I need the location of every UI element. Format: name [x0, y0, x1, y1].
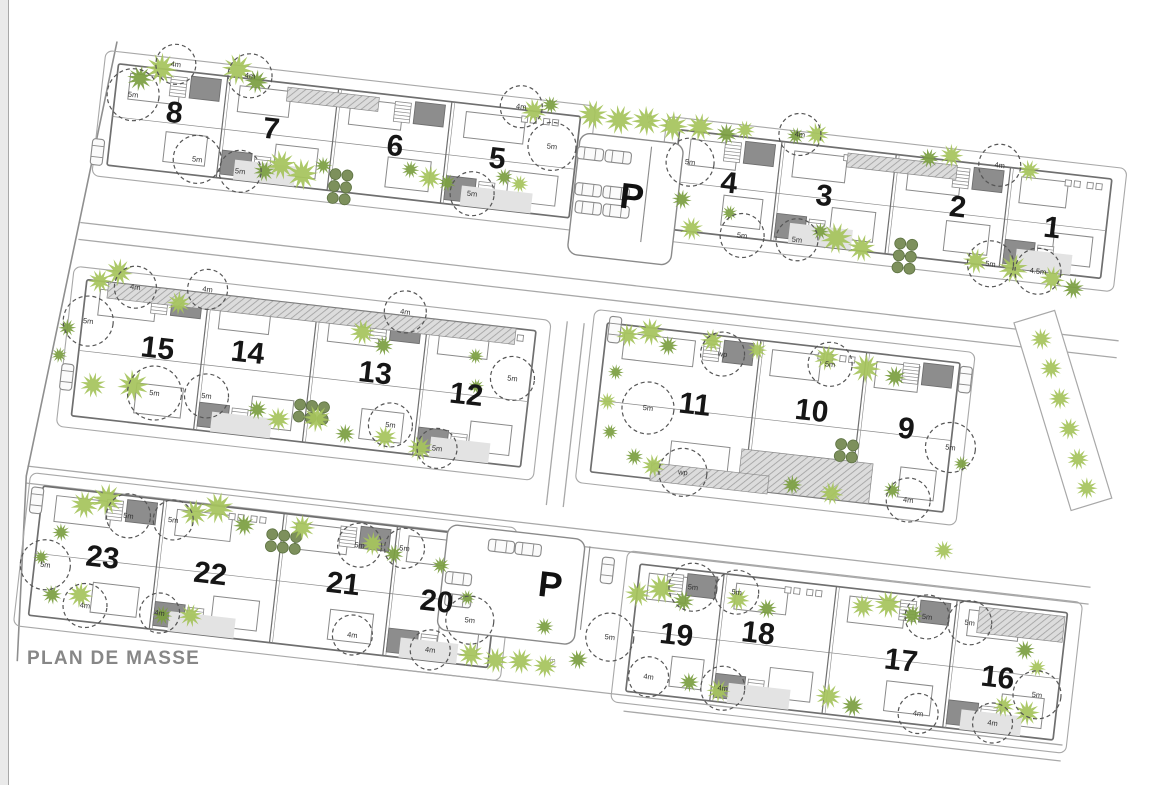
page: PPEVEV5m4m4m5m5m4m5m5m5m4m5m5m4m5m4.5m4m… [0, 0, 1170, 785]
measure-label: 4m [794, 129, 805, 139]
unit-number-12: 12 [448, 377, 485, 414]
parking-label: P [618, 175, 647, 218]
parking-label: P [536, 563, 565, 606]
unit-number-11: 11 [677, 387, 712, 423]
measure-label: 4m [154, 608, 165, 618]
tree [576, 98, 609, 131]
car-body [577, 146, 604, 161]
car-icon [488, 539, 515, 554]
car-body [958, 366, 973, 393]
measure-label: 5m [684, 157, 695, 167]
tree [532, 653, 559, 680]
unit-number-21: 21 [325, 566, 362, 603]
car-icon [958, 366, 973, 393]
car-body [575, 182, 602, 197]
car-icon [605, 150, 632, 165]
car-body [59, 363, 74, 390]
unit-number-20: 20 [418, 584, 455, 621]
plan-title: PLAN DE MASSE [27, 648, 200, 670]
measure-label: 5m [921, 612, 932, 622]
measure-label: 5m [83, 316, 94, 326]
unit-number-14: 14 [229, 335, 266, 372]
car-body [445, 571, 472, 586]
car-body [488, 539, 515, 554]
measure-label: 5m [546, 141, 557, 151]
car-body [600, 557, 615, 584]
tree [630, 104, 663, 137]
measure-label: 4m [400, 307, 411, 317]
shrub [891, 261, 903, 273]
measure-label: 5m [399, 543, 410, 553]
measure-label: 5m [824, 359, 835, 369]
measure-label: 4m [202, 284, 213, 294]
measure-label: 4m [717, 683, 728, 693]
unit-number-23: 23 [84, 539, 121, 576]
car-icon [577, 146, 604, 161]
unit-number-19: 19 [658, 617, 695, 654]
measure-label: 5m [168, 515, 179, 525]
measure-label: 5m [791, 235, 802, 245]
road-line [546, 321, 567, 505]
measure-label: 4m [79, 600, 90, 610]
tree [603, 104, 635, 136]
car-icon [59, 363, 74, 390]
measure-label: 4m [425, 645, 436, 655]
car-body [515, 542, 542, 557]
measure-label: 5m [431, 443, 442, 453]
measure-label: 5m [1031, 690, 1042, 700]
measure-label: 5m [201, 391, 212, 401]
measure-label: 4m [903, 495, 914, 505]
measure-label: 5m [149, 388, 160, 398]
measure-label: 5m [604, 632, 615, 642]
road-line [563, 323, 584, 507]
measure-label: 4.5m [1029, 266, 1047, 277]
unit-11[interactable] [590, 323, 760, 490]
tree [57, 318, 77, 338]
car-body [607, 316, 622, 343]
measure-label: wp [677, 467, 689, 477]
measure-label: 5m [945, 442, 956, 452]
car-icon [515, 542, 542, 557]
car-icon [29, 487, 44, 514]
measure-label: 5m [192, 154, 203, 164]
unit-number-18: 18 [740, 615, 777, 652]
measure-label: 4m [912, 708, 923, 718]
measure-label: 5m [234, 166, 245, 176]
measure-label: 4m [643, 672, 654, 682]
unit-number-16: 16 [979, 660, 1016, 697]
car-body [575, 200, 602, 215]
shrub [903, 263, 915, 275]
tree [506, 647, 534, 675]
tree [933, 540, 954, 561]
car-icon [445, 571, 472, 586]
measure-label: 5m [731, 587, 742, 597]
measure-label: wp [716, 349, 728, 359]
measure-label: 5m [385, 420, 396, 430]
car-icon [90, 138, 105, 165]
unit-number-17: 17 [883, 642, 920, 679]
measure-label: 4m [347, 630, 358, 640]
measure-label: 5m [687, 582, 698, 592]
measure-label: 4m [516, 102, 527, 112]
car-icon [575, 182, 602, 197]
measure-label: 5m [127, 90, 138, 100]
measure-label: 5m [507, 373, 518, 383]
measure-label: 5m [964, 618, 975, 628]
tree [567, 649, 589, 671]
measure-label: 5m [464, 615, 475, 625]
landscape-strip [994, 306, 1133, 515]
car-body [29, 487, 44, 514]
measure-label: 4m [244, 71, 255, 81]
car-body [90, 138, 105, 165]
unit-number-10: 10 [793, 393, 830, 430]
car-icon [600, 557, 615, 584]
measure-label: 5m [642, 403, 653, 413]
measure-label: 5m [736, 230, 747, 240]
car-icon [575, 200, 602, 215]
unit-number-13: 13 [357, 355, 394, 392]
measure-label: 5m [123, 511, 134, 521]
measure-label: 4m [987, 718, 998, 728]
unit-number-15: 15 [139, 330, 176, 367]
measure-label: 4m [170, 59, 181, 69]
measure-label: 4m [130, 282, 141, 292]
measure-label: 5m [354, 540, 365, 550]
measure-label: 4m [994, 160, 1005, 170]
measure-label: 5m [985, 259, 996, 269]
measure-label: 5m [40, 560, 51, 570]
unit-5[interactable] [440, 102, 580, 218]
unit-number-22: 22 [192, 556, 229, 593]
car-body [605, 150, 632, 165]
measure-label: 5m [466, 189, 477, 199]
car-icon [607, 316, 622, 343]
page-edge [0, 0, 9, 785]
